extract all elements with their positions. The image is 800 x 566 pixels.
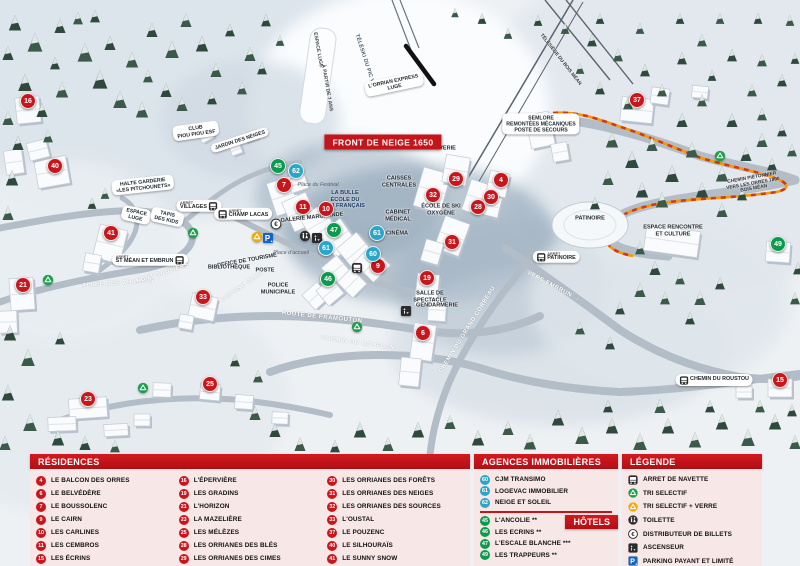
legend-number-badge: 28	[179, 541, 189, 551]
legend-number-badge: 21	[179, 502, 189, 512]
map-marker-21: 21	[15, 277, 31, 293]
hotels-header: HÔTELS	[565, 515, 618, 529]
legend-item-label: LES GRADINS	[194, 490, 239, 497]
legend-item-label: L'ANCOLIE **	[495, 517, 537, 524]
legend-number-badge: 4	[36, 476, 46, 486]
legend-number-badge: 19	[179, 489, 189, 499]
legend-item-label: LE SUNNY SNOW	[342, 555, 397, 562]
legend-item: 19LES GRADINS	[179, 489, 328, 499]
legend-number-badge: 31	[327, 489, 337, 499]
legend-item: TRI SELECTIF	[628, 488, 758, 498]
legend-number-badge: 6	[36, 489, 46, 499]
legend-item-label: ASCENSEUR	[643, 544, 684, 551]
legend-number-badge: 7	[36, 502, 46, 512]
legend-item: TRI SELECTIF + VERRE	[628, 502, 758, 512]
legend-number-badge: 10	[36, 528, 46, 538]
map-marker-6: 6	[415, 325, 431, 341]
legend-item-label: ARRET DE NAVETTE	[643, 476, 708, 483]
map-marker-45: 45	[270, 158, 286, 174]
legend-item: 29LES ORRIANES DES CIMES	[179, 554, 328, 564]
map-marker-62: 62	[288, 163, 304, 179]
residences-list: 4LE BALCON DES ORRES6LE BELVÉDÈRE7LE BOU…	[30, 469, 470, 566]
legend-number-badge: 61	[480, 486, 490, 496]
legend-item: ARRET DE NAVETTE	[628, 475, 758, 485]
legend-item: 28LES ORRIANES DES BLÉS	[179, 541, 328, 551]
map-markers-layer: 1640412133232571110919629432302831371545…	[0, 0, 800, 450]
map-marker-31: 31	[444, 234, 460, 250]
legend-item-label: LES ECRINS **	[495, 529, 541, 536]
legend-item: 11LES CEMBROS	[36, 541, 179, 551]
legend-item-label: LE SILHOURAÏS	[342, 542, 393, 549]
euro-icon: €	[628, 529, 638, 539]
parking-icon: P	[628, 556, 638, 566]
legend-item-label: TRI SELECTIF + VERRE	[643, 503, 717, 510]
legend-item: 41LE SUNNY SNOW	[327, 554, 466, 564]
elevator-icon	[628, 543, 638, 553]
legend-item: 25LES MÉLÈZES	[179, 528, 328, 538]
map-marker-47: 47	[326, 222, 342, 238]
legend-item-label: LES CARLINES	[51, 529, 99, 536]
map-marker-15: 15	[772, 372, 788, 388]
legend-number-badge: 62	[480, 498, 490, 508]
legend-item: 33L'OUSTAL	[327, 515, 466, 525]
legend-number-badge: 60	[480, 475, 490, 485]
residences-column-3: 30LES ORRIANES DES FORÊTS31LES ORRIANES …	[327, 472, 466, 566]
map-marker-61: 61	[318, 240, 334, 256]
legend-item-label: L'HORIZON	[194, 503, 230, 510]
legend-item-label: NEIGE ET SOLEIL	[495, 499, 551, 506]
map-marker-32: 32	[425, 187, 441, 203]
legend-number-badge: 15	[36, 554, 46, 564]
svg-text:P: P	[630, 558, 635, 566]
residences-header: RÉSIDENCES	[30, 454, 470, 469]
map-marker-29: 29	[448, 171, 464, 187]
legend-item: 62NEIGE ET SOLEIL	[480, 498, 614, 508]
map-marker-49: 49	[770, 236, 786, 252]
residences-column-1: 4LE BALCON DES ORRES6LE BELVÉDÈRE7LE BOU…	[36, 472, 179, 566]
map-marker-16: 16	[20, 93, 36, 109]
legend-panel-residences: RÉSIDENCES 4LE BALCON DES ORRES6LE BELVÉ…	[30, 454, 470, 566]
legend-item-label: PARKING PAYANT ET LIMITÉ	[643, 558, 733, 565]
legend-number-badge: 46	[480, 527, 490, 537]
map-marker-23: 23	[80, 391, 96, 407]
legend-item: 23LA MAZELIÈRE	[179, 515, 328, 525]
legend-item: 4LE BALCON DES ORRES	[36, 476, 179, 486]
legend-panel-legende: LÉGENDE ARRET DE NAVETTETRI SELECTIFTRI …	[622, 454, 762, 566]
legend-item-label: DISTRIBUTEUR DE BILLETS	[643, 531, 732, 538]
legend-item-label: LES ÉCRINS	[51, 555, 90, 562]
legend-item-label: L'ESCALE BLANCHE ***	[495, 540, 571, 547]
legend-item: 10LES CARLINES	[36, 528, 179, 538]
legend-number-badge: 37	[327, 528, 337, 538]
legend-item: 6LE BELVÉDÈRE	[36, 489, 179, 499]
legend-item: 60CJM TRANSIMO	[480, 475, 614, 485]
legend-item-label: LES TRAPPEURS **	[495, 552, 557, 559]
legende-header: LÉGENDE	[622, 454, 762, 469]
legend-panel-agences: AGENCES IMMOBILIÈRES HÔTELS 60CJM TRANSI…	[474, 454, 618, 566]
legend-item-label: LE POUZENC	[342, 529, 384, 536]
legend-item: 40LE SILHOURAÏS	[327, 541, 466, 551]
legend-item-label: LES ORRIANES DES NEIGES	[342, 490, 433, 497]
legend-item: 9LE CAIRN	[36, 515, 179, 525]
map-marker-46: 46	[320, 271, 336, 287]
map-marker-61: 61	[369, 225, 385, 241]
legend-number-badge: 40	[327, 541, 337, 551]
map-marker-41: 41	[103, 225, 119, 241]
toilet-icon	[628, 515, 638, 525]
legend-item: PPARKING PAYANT ET LIMITÉ	[628, 556, 758, 566]
legend-item: 30LES ORRIANES DES FORÊTS	[327, 476, 466, 486]
legend-item: 47L'ESCALE BLANCHE ***	[480, 539, 614, 549]
legend-number-badge: 23	[179, 515, 189, 525]
legend-item: 61LOGEVAC IMMOBILIER	[480, 486, 614, 496]
map-marker-25: 25	[202, 376, 218, 392]
recycle-green-icon	[628, 488, 638, 498]
legend-number-badge: 11	[36, 541, 46, 551]
legend-item-label: LES ORRIANES DES SOURCES	[342, 503, 441, 510]
legend-item-label: LES ORRIANES DES FORÊTS	[342, 477, 435, 484]
map-marker-30: 30	[483, 189, 499, 205]
legend-item: 7LE BOUSSOLENC	[36, 502, 179, 512]
recycle-yellow-icon	[628, 502, 638, 512]
map-marker-40: 40	[47, 158, 63, 174]
hotels-divider	[480, 511, 612, 513]
legend-item-label: LE BALCON DES ORRES	[51, 477, 130, 484]
legend-item-label: LA MAZELIÈRE	[194, 516, 242, 523]
legend-item-label: LE BELVÉDÈRE	[51, 490, 101, 497]
legend-number-badge: 49	[480, 550, 490, 560]
legend-item-label: CJM TRANSIMO	[495, 476, 546, 483]
map-marker-10: 10	[318, 201, 334, 217]
legend-item: 49LES TRAPPEURS **	[480, 550, 614, 560]
legend-number-badge: 45	[480, 516, 490, 526]
legend-item-label: LOGEVAC IMMOBILIER	[495, 488, 568, 495]
legend-item-label: TRI SELECTIF	[643, 490, 687, 497]
legende-list: ARRET DE NAVETTETRI SELECTIFTRI SELECTIF…	[622, 469, 762, 566]
resort-map: €P ESPACE LUGEÀ PARTIR DE 7 ANSTÉLÉSKI D…	[0, 0, 800, 566]
map-marker-37: 37	[629, 92, 645, 108]
legend-item: 21L'HORIZON	[179, 502, 328, 512]
legend-number-badge: 16	[179, 476, 189, 486]
legend-item: €DISTRIBUTEUR DE BILLETS	[628, 529, 758, 539]
legend-item-label: LES MÉLÈZES	[194, 529, 240, 536]
legend-number-badge: 41	[327, 554, 337, 564]
legend-item-label: LE BOUSSOLENC	[51, 503, 107, 510]
map-marker-11: 11	[295, 199, 311, 215]
legend-item-label: L'OUSTAL	[342, 516, 374, 523]
map-marker-60: 60	[365, 246, 381, 262]
legend-number-badge: 29	[179, 554, 189, 564]
front-de-neige-banner: FRONT DE NEIGE 1650	[324, 135, 441, 150]
legend-number-badge: 32	[327, 502, 337, 512]
legend-item-label: LES ORRIANES DES CIMES	[194, 555, 281, 562]
legend-number-badge: 30	[327, 476, 337, 486]
legend-item: 37LE POUZENC	[327, 528, 466, 538]
legend-item: ASCENSEUR	[628, 543, 758, 553]
legend-item: 15LES ÉCRINS	[36, 554, 179, 564]
residences-column-2: 16L'ÉPERVIÈRE19LES GRADINS21L'HORIZON23L…	[179, 472, 328, 566]
legend-number-badge: 47	[480, 539, 490, 549]
agences-header: AGENCES IMMOBILIÈRES	[474, 454, 618, 469]
legend-item: 31LES ORRIANES DES NEIGES	[327, 489, 466, 499]
map-marker-28: 28	[470, 199, 486, 215]
bus-icon	[628, 475, 638, 485]
map-marker-33: 33	[195, 289, 211, 305]
legend-item: TOILETTE	[628, 515, 758, 525]
legend-item: 32LES ORRIANES DES SOURCES	[327, 502, 466, 512]
legend-item: 16L'ÉPERVIÈRE	[179, 476, 328, 486]
legend-item-label: LES ORRIANES DES BLÉS	[194, 542, 278, 549]
map-marker-7: 7	[276, 177, 292, 193]
legend-number-badge: 25	[179, 528, 189, 538]
legend-item-label: LES CEMBROS	[51, 542, 99, 549]
legend-number-badge: 33	[327, 515, 337, 525]
legend-item-label: TOILETTE	[643, 517, 675, 524]
legend-item-label: LE CAIRN	[51, 516, 82, 523]
map-marker-19: 19	[419, 270, 435, 286]
legend-number-badge: 9	[36, 515, 46, 525]
legend-item-label: L'ÉPERVIÈRE	[194, 477, 237, 484]
agences-list: HÔTELS 60CJM TRANSIMO61LOGEVAC IMMOBILIE…	[474, 469, 618, 566]
map-marker-4: 4	[493, 172, 509, 188]
